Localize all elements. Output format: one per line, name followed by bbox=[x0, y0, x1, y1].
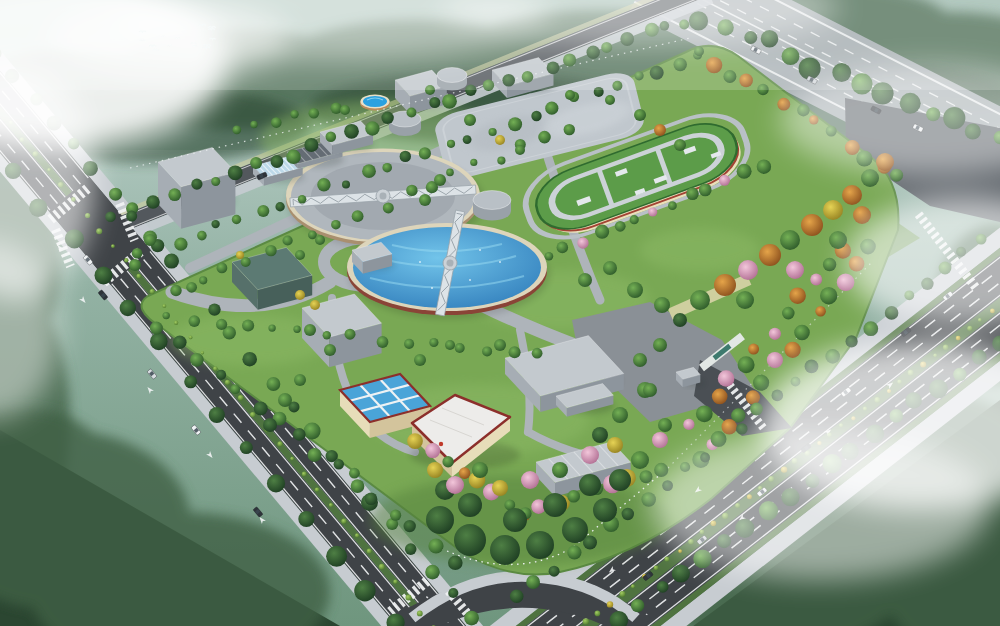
tree bbox=[615, 221, 626, 232]
tree bbox=[293, 428, 306, 441]
tree bbox=[367, 549, 372, 554]
tree bbox=[189, 315, 201, 327]
tree bbox=[271, 155, 284, 168]
tree bbox=[454, 524, 486, 556]
tree bbox=[552, 462, 568, 478]
tree bbox=[549, 566, 560, 577]
tree bbox=[209, 407, 225, 423]
tree bbox=[648, 207, 657, 216]
tree bbox=[162, 304, 166, 308]
tree bbox=[379, 564, 385, 570]
tree bbox=[673, 313, 687, 327]
tree bbox=[810, 274, 822, 286]
tree bbox=[609, 469, 631, 491]
tree bbox=[199, 276, 207, 284]
tree bbox=[186, 282, 197, 293]
tree bbox=[545, 252, 554, 261]
tree bbox=[769, 328, 781, 340]
tree bbox=[603, 261, 617, 275]
tree bbox=[309, 108, 320, 119]
small-pool bbox=[360, 95, 390, 111]
tree bbox=[407, 108, 417, 118]
tree bbox=[607, 601, 613, 607]
tree bbox=[236, 251, 244, 259]
tree bbox=[490, 535, 520, 565]
tree bbox=[722, 419, 737, 434]
tree bbox=[240, 441, 253, 454]
tree bbox=[298, 511, 314, 527]
tree bbox=[352, 210, 364, 222]
tree bbox=[417, 611, 423, 617]
tree bbox=[657, 581, 669, 593]
tree bbox=[164, 254, 179, 269]
tree bbox=[382, 163, 392, 173]
tree bbox=[425, 565, 440, 580]
tree bbox=[459, 467, 471, 479]
tree bbox=[275, 202, 284, 211]
tree bbox=[304, 422, 321, 439]
tree bbox=[581, 446, 599, 464]
tree bbox=[290, 110, 298, 118]
tree bbox=[341, 519, 346, 524]
tree bbox=[448, 556, 463, 571]
tree bbox=[362, 164, 376, 178]
tree bbox=[842, 185, 862, 205]
storage-tank-c bbox=[473, 191, 511, 221]
tree bbox=[494, 339, 506, 351]
tree bbox=[652, 432, 668, 448]
tree bbox=[627, 282, 643, 298]
tree bbox=[111, 244, 115, 248]
tree bbox=[757, 160, 771, 174]
tree bbox=[95, 266, 113, 284]
tree bbox=[429, 97, 440, 108]
tree bbox=[150, 333, 168, 351]
tree bbox=[577, 237, 588, 248]
tree bbox=[690, 290, 710, 310]
tree bbox=[174, 238, 187, 251]
tree bbox=[326, 131, 337, 142]
tree bbox=[201, 351, 204, 354]
tree bbox=[340, 105, 350, 115]
tree bbox=[191, 179, 202, 190]
tree bbox=[672, 564, 690, 582]
tree bbox=[173, 336, 187, 350]
tree bbox=[232, 215, 241, 224]
tree bbox=[351, 479, 365, 493]
tree bbox=[96, 228, 102, 234]
tree bbox=[250, 412, 255, 417]
tree bbox=[699, 184, 712, 197]
tree bbox=[820, 287, 837, 304]
tree bbox=[448, 588, 458, 598]
tree bbox=[184, 375, 197, 388]
tree bbox=[956, 336, 961, 341]
tree bbox=[254, 402, 268, 416]
tree bbox=[442, 456, 453, 467]
tree bbox=[495, 135, 505, 145]
tree bbox=[785, 342, 801, 358]
tree bbox=[355, 533, 359, 537]
tree bbox=[213, 366, 218, 371]
tree bbox=[150, 322, 163, 335]
tree bbox=[230, 384, 240, 394]
tree bbox=[782, 307, 795, 320]
tree bbox=[334, 459, 344, 469]
tree bbox=[738, 356, 755, 373]
tree bbox=[532, 348, 543, 359]
tree bbox=[232, 125, 241, 134]
tree bbox=[257, 205, 269, 217]
tree bbox=[853, 206, 871, 224]
tree bbox=[283, 235, 293, 245]
tree bbox=[567, 545, 581, 559]
tree bbox=[295, 250, 305, 260]
tree bbox=[509, 346, 521, 358]
tree bbox=[293, 326, 300, 333]
tree bbox=[759, 244, 781, 266]
tree bbox=[595, 611, 601, 617]
tree bbox=[801, 214, 823, 236]
tree bbox=[472, 462, 488, 478]
tree bbox=[365, 492, 378, 505]
tree bbox=[271, 117, 282, 128]
tree bbox=[829, 231, 847, 249]
tree bbox=[132, 248, 143, 259]
tree bbox=[595, 225, 609, 239]
tree bbox=[216, 319, 227, 330]
tree bbox=[455, 343, 465, 353]
tree bbox=[331, 103, 342, 114]
tree bbox=[268, 324, 275, 331]
tree bbox=[238, 395, 244, 401]
tree bbox=[470, 159, 477, 166]
tree bbox=[489, 128, 497, 136]
tree bbox=[265, 245, 276, 256]
tree bbox=[317, 178, 330, 191]
tree bbox=[241, 257, 251, 267]
tree bbox=[482, 346, 492, 356]
tree bbox=[298, 195, 307, 204]
tree bbox=[446, 169, 454, 177]
tree bbox=[217, 263, 228, 274]
tree bbox=[538, 131, 551, 144]
tree bbox=[823, 258, 836, 271]
tree bbox=[425, 443, 440, 458]
tree bbox=[190, 353, 204, 367]
tree bbox=[526, 575, 540, 589]
tree bbox=[428, 538, 443, 553]
tree bbox=[383, 202, 394, 213]
tree bbox=[846, 335, 858, 347]
tree bbox=[562, 517, 588, 543]
tree bbox=[442, 94, 457, 109]
tree bbox=[567, 490, 580, 503]
tree bbox=[426, 506, 454, 534]
tree bbox=[750, 403, 763, 416]
tree bbox=[304, 138, 318, 152]
tree bbox=[668, 201, 677, 210]
tree bbox=[377, 336, 389, 348]
tree bbox=[400, 151, 411, 162]
tree bbox=[815, 306, 826, 317]
tree bbox=[714, 274, 736, 296]
tree bbox=[736, 423, 747, 434]
tree bbox=[447, 140, 455, 148]
tree bbox=[738, 260, 758, 280]
tree bbox=[612, 407, 628, 423]
tree bbox=[492, 480, 508, 496]
tree bbox=[653, 338, 667, 352]
tree bbox=[349, 468, 360, 479]
tree bbox=[696, 405, 713, 422]
tree bbox=[686, 188, 699, 201]
tree bbox=[250, 121, 257, 128]
tree bbox=[174, 321, 178, 325]
tree bbox=[109, 188, 122, 201]
tree bbox=[326, 546, 347, 567]
tree bbox=[789, 287, 806, 304]
tree bbox=[310, 300, 320, 310]
tree bbox=[564, 124, 575, 135]
tree bbox=[323, 331, 331, 339]
tree bbox=[308, 448, 322, 462]
tree bbox=[565, 90, 575, 100]
tree bbox=[579, 474, 601, 496]
storage-tank-b bbox=[389, 111, 421, 136]
tree bbox=[168, 188, 181, 201]
tree bbox=[406, 595, 412, 601]
tree bbox=[345, 329, 356, 340]
tree bbox=[302, 472, 307, 477]
tree bbox=[404, 339, 414, 349]
tree bbox=[557, 242, 569, 254]
tree bbox=[324, 344, 336, 356]
tree bbox=[354, 580, 375, 601]
tree bbox=[445, 340, 455, 350]
tree bbox=[592, 427, 608, 443]
tree bbox=[622, 508, 634, 520]
tree bbox=[419, 194, 431, 206]
tree bbox=[767, 352, 783, 368]
tree bbox=[531, 111, 541, 121]
tree bbox=[605, 95, 615, 105]
tree bbox=[278, 393, 292, 407]
tree bbox=[211, 220, 219, 228]
tree bbox=[170, 285, 181, 296]
tree bbox=[503, 508, 527, 532]
tree bbox=[286, 150, 301, 165]
tree bbox=[405, 543, 417, 555]
tree bbox=[136, 274, 141, 279]
tree bbox=[434, 174, 446, 186]
tree bbox=[497, 157, 505, 165]
tree bbox=[146, 195, 160, 209]
tree bbox=[508, 117, 522, 131]
tree bbox=[267, 377, 281, 391]
tree bbox=[189, 336, 193, 340]
tree bbox=[381, 112, 393, 124]
tree bbox=[674, 139, 686, 151]
tree bbox=[578, 273, 592, 287]
tree bbox=[404, 520, 416, 532]
tree bbox=[823, 200, 843, 220]
tree bbox=[407, 433, 423, 449]
tree bbox=[277, 441, 282, 446]
tree bbox=[719, 175, 730, 186]
tree bbox=[664, 557, 669, 562]
tree bbox=[737, 164, 752, 179]
tree bbox=[861, 169, 879, 187]
tree bbox=[643, 383, 657, 397]
tree bbox=[607, 437, 623, 453]
tree bbox=[634, 109, 646, 121]
tree bbox=[631, 451, 649, 469]
tree bbox=[211, 177, 220, 186]
tree bbox=[390, 510, 401, 521]
tree bbox=[225, 380, 230, 385]
tree bbox=[124, 258, 128, 262]
tree bbox=[216, 370, 226, 380]
tree bbox=[712, 389, 728, 405]
tree bbox=[658, 418, 672, 432]
tree bbox=[593, 498, 617, 522]
tree bbox=[748, 344, 759, 355]
tree bbox=[631, 584, 635, 588]
red-sculpture bbox=[439, 442, 443, 446]
tree bbox=[633, 353, 647, 367]
tree bbox=[463, 135, 472, 144]
tree bbox=[429, 338, 438, 347]
tree bbox=[315, 235, 325, 245]
tree bbox=[515, 145, 525, 155]
tree bbox=[267, 474, 285, 492]
tree bbox=[631, 599, 644, 612]
tree bbox=[794, 325, 810, 341]
tree bbox=[329, 503, 333, 507]
tree bbox=[365, 121, 379, 135]
tree bbox=[678, 549, 682, 553]
tree bbox=[144, 234, 156, 246]
tree bbox=[526, 531, 554, 559]
tree bbox=[683, 419, 694, 430]
tree bbox=[304, 324, 316, 336]
tree bbox=[331, 220, 341, 230]
tree bbox=[263, 418, 277, 432]
tree bbox=[545, 102, 558, 115]
tree bbox=[197, 231, 207, 241]
tree bbox=[344, 124, 359, 139]
tree bbox=[780, 230, 800, 250]
tree bbox=[342, 181, 350, 189]
tree bbox=[150, 289, 155, 294]
tree bbox=[163, 312, 170, 319]
rendering-canvas: Aerial rendering of a wastewater treatme… bbox=[0, 0, 1000, 626]
tree bbox=[406, 185, 417, 196]
tree bbox=[543, 493, 567, 517]
tree bbox=[446, 476, 464, 494]
tree bbox=[654, 565, 659, 570]
tree bbox=[464, 114, 476, 126]
tree bbox=[630, 215, 639, 224]
tree bbox=[208, 303, 220, 315]
tree bbox=[746, 390, 760, 404]
tree bbox=[583, 618, 589, 624]
tree bbox=[464, 611, 479, 626]
tree bbox=[129, 259, 141, 271]
tree bbox=[427, 462, 443, 478]
tree bbox=[250, 157, 262, 169]
tree bbox=[294, 374, 306, 386]
tree bbox=[290, 457, 294, 461]
tree bbox=[126, 211, 137, 222]
tree bbox=[458, 493, 482, 517]
tree bbox=[619, 591, 625, 597]
tree bbox=[242, 319, 254, 331]
tree bbox=[315, 487, 319, 491]
tree bbox=[863, 321, 878, 336]
tree bbox=[510, 590, 524, 604]
tree bbox=[654, 124, 666, 136]
tree bbox=[419, 147, 431, 159]
tree bbox=[105, 212, 116, 223]
tree bbox=[393, 580, 397, 584]
tree bbox=[228, 165, 243, 180]
tree bbox=[414, 354, 426, 366]
tree bbox=[242, 352, 257, 367]
tree bbox=[718, 370, 735, 387]
tree bbox=[654, 297, 670, 313]
tree bbox=[120, 300, 136, 316]
aerial-rendering: Aerial rendering of a wastewater treatme… bbox=[0, 0, 1000, 626]
tree bbox=[753, 375, 769, 391]
tree bbox=[295, 290, 305, 300]
tree bbox=[786, 261, 804, 279]
tree bbox=[640, 470, 653, 483]
tree bbox=[521, 471, 539, 489]
tree bbox=[736, 291, 754, 309]
